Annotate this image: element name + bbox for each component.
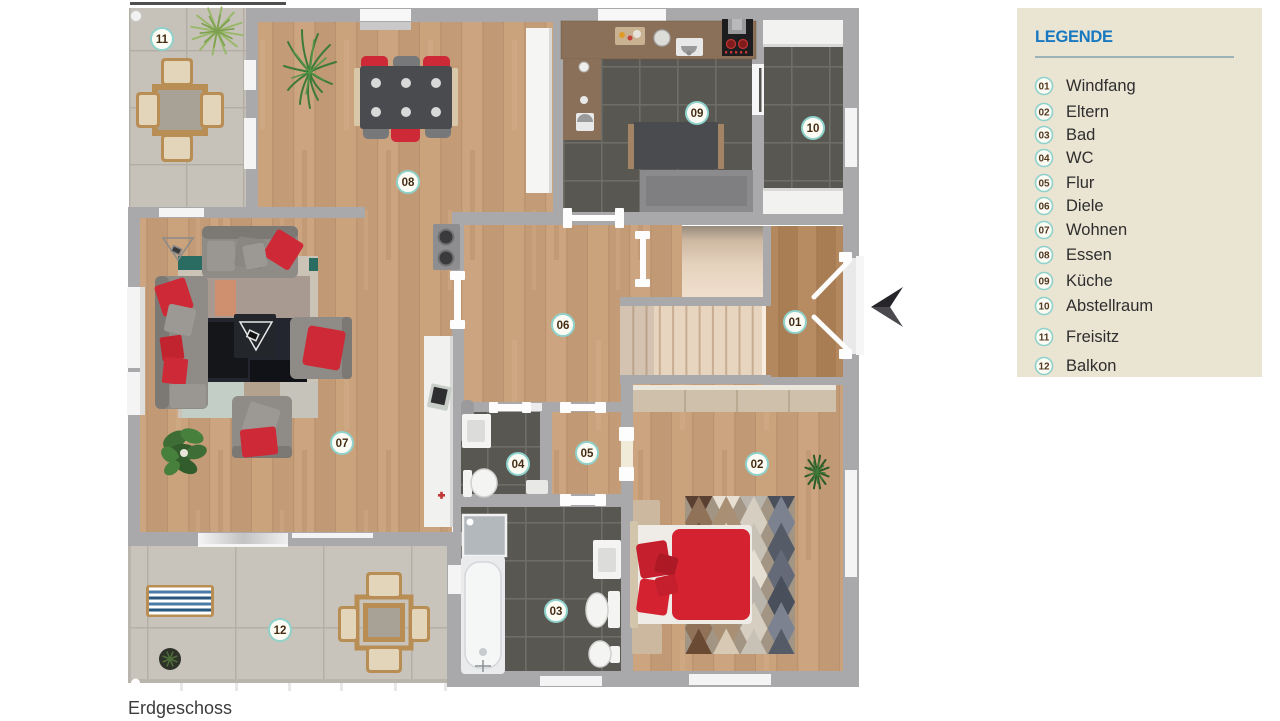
svg-text:04: 04 (1038, 154, 1050, 165)
svg-text:Bad: Bad (1066, 126, 1095, 144)
svg-text:05: 05 (581, 448, 594, 460)
svg-text:09: 09 (1038, 277, 1050, 288)
svg-text:LEGENDE: LEGENDE (1035, 28, 1113, 46)
svg-text:09: 09 (691, 108, 704, 120)
svg-text:WC: WC (1066, 149, 1094, 167)
svg-text:11: 11 (156, 34, 169, 46)
svg-text:12: 12 (1038, 362, 1050, 373)
svg-text:08: 08 (402, 177, 415, 189)
svg-text:Windfang: Windfang (1066, 77, 1136, 95)
svg-text:04: 04 (512, 459, 525, 471)
svg-text:Essen: Essen (1066, 246, 1112, 264)
svg-text:Abstellraum: Abstellraum (1066, 297, 1153, 315)
svg-text:Flur: Flur (1066, 174, 1095, 192)
svg-text:08: 08 (1038, 251, 1050, 262)
svg-text:07: 07 (1038, 226, 1050, 237)
svg-text:11: 11 (1039, 333, 1050, 344)
svg-text:03: 03 (550, 606, 563, 618)
svg-text:Eltern: Eltern (1066, 103, 1109, 121)
svg-text:12: 12 (274, 625, 287, 637)
svg-text:Freisitz: Freisitz (1066, 328, 1119, 346)
svg-text:03: 03 (1038, 131, 1050, 142)
svg-text:Diele: Diele (1066, 197, 1104, 215)
svg-text:01: 01 (1038, 82, 1050, 93)
svg-text:Wohnen: Wohnen (1066, 221, 1127, 239)
svg-text:06: 06 (557, 320, 570, 332)
svg-text:02: 02 (1038, 108, 1050, 119)
svg-text:10: 10 (1038, 302, 1050, 313)
svg-text:Küche: Küche (1066, 272, 1113, 290)
svg-text:05: 05 (1038, 179, 1050, 190)
svg-text:06: 06 (1038, 202, 1050, 213)
svg-text:Erdgeschoss: Erdgeschoss (128, 698, 232, 718)
svg-text:01: 01 (789, 317, 802, 329)
svg-text:02: 02 (751, 459, 764, 471)
svg-text:Balkon: Balkon (1066, 357, 1116, 375)
svg-text:10: 10 (807, 123, 820, 135)
svg-text:07: 07 (336, 438, 349, 450)
